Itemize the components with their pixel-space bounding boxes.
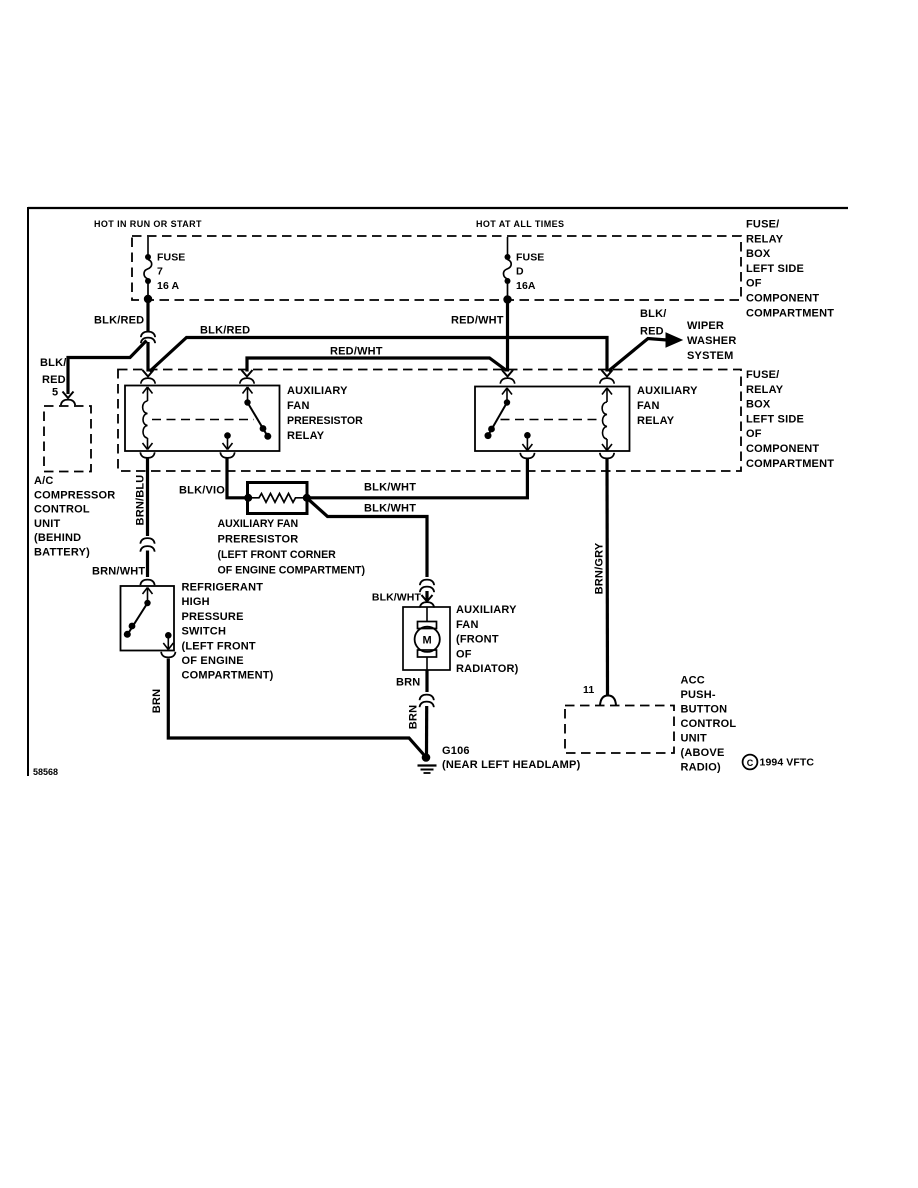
svg-text:(LEFT FRONT CORNER: (LEFT FRONT CORNER (218, 549, 337, 561)
svg-text:5: 5 (52, 387, 58, 399)
svg-text:1994 VFTC: 1994 VFTC (760, 757, 815, 769)
svg-text:BOX: BOX (746, 248, 771, 260)
svg-text:RELAY: RELAY (637, 415, 675, 427)
svg-text:BLK/RED: BLK/RED (94, 315, 144, 327)
svg-text:CONTROL: CONTROL (681, 718, 737, 730)
svg-text:OF: OF (456, 648, 472, 660)
svg-text:FAN: FAN (637, 400, 660, 412)
svg-text:RELAY: RELAY (287, 430, 325, 442)
svg-text:16 A: 16 A (157, 280, 180, 292)
svg-text:OF: OF (746, 428, 762, 440)
svg-text:(LEFT FRONT: (LEFT FRONT (182, 640, 256, 652)
svg-text:BRN/BLU: BRN/BLU (135, 475, 147, 526)
svg-text:7: 7 (157, 266, 163, 278)
svg-text:WIPER: WIPER (687, 320, 724, 332)
svg-text:BOX: BOX (746, 399, 771, 411)
svg-text:58568: 58568 (33, 767, 58, 777)
svg-text:(BEHIND: (BEHIND (34, 532, 81, 544)
svg-text:BLK/: BLK/ (640, 308, 666, 320)
svg-text:BLK/WHT: BLK/WHT (372, 592, 422, 604)
svg-text:FUSE/: FUSE/ (746, 369, 779, 381)
svg-text:AUXILIARY: AUXILIARY (456, 604, 517, 616)
svg-text:BUTTON: BUTTON (681, 704, 728, 716)
svg-text:ACC: ACC (681, 675, 705, 687)
svg-text:UNIT: UNIT (34, 518, 61, 530)
svg-text:BRN: BRN (396, 677, 420, 689)
svg-text:BRN: BRN (151, 689, 163, 713)
svg-text:FAN: FAN (287, 400, 310, 412)
svg-text:RED/WHT: RED/WHT (330, 346, 383, 358)
svg-text:RELAY: RELAY (746, 233, 784, 245)
svg-text:BLK/WHT: BLK/WHT (364, 503, 416, 515)
svg-text:BLK/WHT: BLK/WHT (364, 482, 416, 494)
svg-text:BLK/RED: BLK/RED (200, 325, 250, 337)
svg-text:G106: G106 (442, 745, 470, 757)
svg-text:(NEAR LEFT HEADLAMP): (NEAR LEFT HEADLAMP) (442, 759, 581, 771)
svg-text:PUSH-: PUSH- (681, 689, 716, 701)
svg-text:COMPARTMENT: COMPARTMENT (746, 458, 834, 470)
svg-text:BRN/WHT: BRN/WHT (92, 566, 145, 578)
svg-text:BRN/GRY: BRN/GRY (594, 542, 606, 594)
svg-text:PRESSURE: PRESSURE (182, 611, 244, 623)
svg-text:RELAY: RELAY (746, 384, 784, 396)
svg-text:OF ENGINE: OF ENGINE (182, 655, 244, 667)
svg-text:RADIO): RADIO) (681, 762, 721, 774)
svg-text:AUXILIARY: AUXILIARY (287, 385, 348, 397)
svg-text:FUSE/: FUSE/ (746, 219, 779, 231)
svg-text:PRERESISTOR: PRERESISTOR (287, 415, 363, 427)
svg-text:D: D (516, 266, 524, 278)
svg-text:AUXILIARY FAN: AUXILIARY FAN (218, 518, 299, 530)
svg-text:SWITCH: SWITCH (182, 626, 227, 638)
svg-text:SYSTEM: SYSTEM (687, 350, 733, 362)
svg-text:C: C (747, 758, 754, 768)
svg-text:RED/WHT: RED/WHT (451, 315, 504, 327)
svg-text:OF: OF (746, 278, 762, 290)
svg-text:OF ENGINE COMPARTMENT): OF ENGINE COMPARTMENT) (218, 565, 366, 577)
svg-text:LEFT SIDE: LEFT SIDE (746, 263, 804, 275)
svg-text:RED: RED (640, 326, 664, 338)
svg-text:LEFT SIDE: LEFT SIDE (746, 413, 804, 425)
svg-text:FUSE: FUSE (157, 252, 185, 264)
svg-text:11: 11 (583, 684, 594, 696)
svg-text:(FRONT: (FRONT (456, 634, 499, 646)
svg-text:(ABOVE: (ABOVE (681, 747, 725, 759)
svg-text:PRERESISTOR: PRERESISTOR (218, 534, 299, 546)
svg-text:HIGH: HIGH (182, 596, 210, 608)
svg-text:BLK/VIO: BLK/VIO (179, 485, 225, 497)
svg-text:BLK/: BLK/ (40, 357, 66, 369)
svg-text:COMPONENT: COMPONENT (746, 443, 819, 455)
svg-text:COMPRESSOR: COMPRESSOR (34, 489, 115, 501)
svg-text:BATTERY): BATTERY) (34, 547, 90, 559)
svg-text:UNIT: UNIT (681, 733, 708, 745)
svg-text:COMPARTMENT: COMPARTMENT (746, 307, 834, 319)
svg-text:16A: 16A (516, 280, 536, 292)
svg-text:BRN: BRN (408, 705, 420, 729)
svg-text:HOT AT ALL TIMES: HOT AT ALL TIMES (476, 219, 564, 229)
svg-text:AUXILIARY: AUXILIARY (637, 385, 698, 397)
svg-text:RADIATOR): RADIATOR) (456, 663, 519, 675)
svg-text:A/C: A/C (34, 475, 54, 487)
svg-text:COMPARTMENT): COMPARTMENT) (182, 670, 274, 682)
svg-text:COMPONENT: COMPONENT (746, 293, 819, 305)
svg-text:RED: RED (42, 374, 66, 386)
svg-text:M: M (423, 635, 432, 647)
svg-text:REFRIGERANT: REFRIGERANT (182, 582, 264, 594)
svg-text:FAN: FAN (456, 619, 479, 631)
svg-text:WASHER: WASHER (687, 335, 736, 347)
svg-text:HOT IN RUN OR START: HOT IN RUN OR START (94, 219, 202, 229)
svg-text:CONTROL: CONTROL (34, 504, 90, 516)
svg-text:FUSE: FUSE (516, 252, 544, 264)
